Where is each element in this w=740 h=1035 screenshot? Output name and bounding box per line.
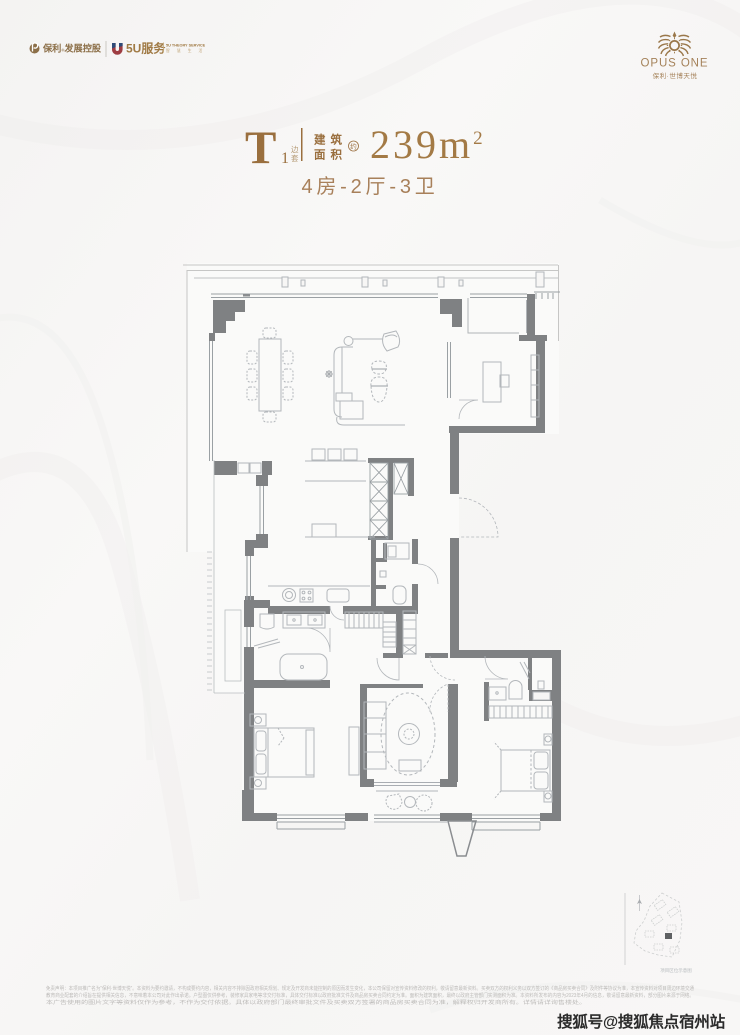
- svg-text:免责声明：本项目推广名为"保利·世博天悦"。本资料为要约邀请: 免责声明：本项目推广名为"保利·世博天悦"。本资料为要约邀请，不构成要约内容，相…: [46, 985, 694, 992]
- svg-text:保利·世博天悦: 保利·世博天悦: [653, 71, 698, 80]
- svg-text:T: T: [245, 122, 276, 174]
- svg-text:1: 1: [281, 150, 289, 167]
- svg-text:5U THEORY SERVICE: 5U THEORY SERVICE: [166, 44, 206, 48]
- svg-text:搜狐号@搜狐焦点宿州站: 搜狐号@搜狐焦点宿州站: [557, 1012, 726, 1031]
- svg-text:建筑: 建筑: [314, 133, 347, 147]
- svg-text:智 慧 生 活: 智 慧 生 活: [166, 48, 205, 53]
- svg-text:项目区位示意图: 项目区位示意图: [660, 967, 692, 974]
- svg-text:保利®发展控股: 保利®发展控股: [42, 43, 102, 54]
- svg-text:面积: 面积: [314, 148, 347, 162]
- svg-text:约: 约: [350, 142, 357, 151]
- svg-text:5U服务: 5U服务: [126, 41, 166, 56]
- svg-text:239m2: 239m2: [370, 122, 486, 167]
- svg-text:教育商业配套的介绍旨在提供相关信息，不意味着本公司对此作出承: 教育商业配套的介绍旨在提供相关信息，不意味着本公司对此作出承诺。户型图仅供参考，…: [46, 992, 694, 999]
- svg-text:OPUS ONE: OPUS ONE: [641, 58, 709, 70]
- svg-text:边: 边: [291, 145, 299, 154]
- svg-text:4房-2厅-3卫: 4房-2厅-3卫: [301, 175, 438, 198]
- svg-text:本广告使用的图片文字等资料仅作为参考，不作为交付依据。具体以: 本广告使用的图片文字等资料仅作为参考，不作为交付依据。具体以政府部门最终审批文件…: [46, 999, 586, 1006]
- svg-text:套: 套: [291, 153, 299, 163]
